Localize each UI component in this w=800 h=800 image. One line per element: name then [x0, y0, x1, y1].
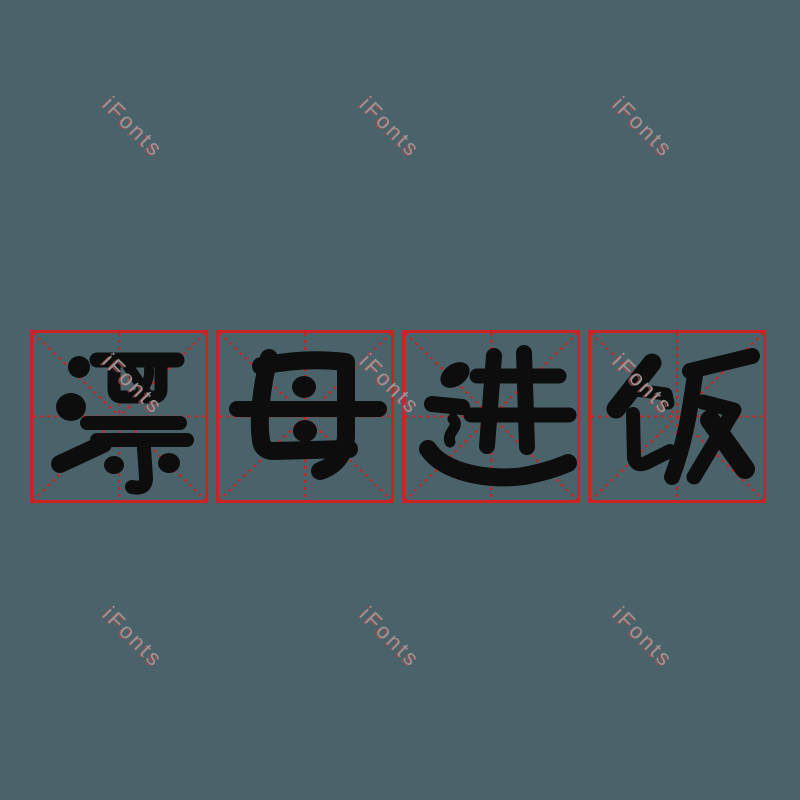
grid-box-3: 进: [402, 330, 580, 503]
watermark-text: iFonts: [608, 93, 677, 162]
watermark-text: iFonts: [98, 603, 167, 672]
font-preview-canvas: 漂 母: [0, 0, 800, 800]
watermark-text: iFonts: [608, 603, 677, 672]
watermark-text: iFonts: [355, 603, 424, 672]
character-glyph-fan: [588, 330, 766, 503]
grid-box-4: 饭: [588, 330, 766, 503]
practice-grid-row: 漂 母: [30, 330, 766, 503]
watermark-text: iFonts: [98, 93, 167, 162]
character-glyph-jin: [402, 330, 580, 503]
watermark-text: iFonts: [355, 93, 424, 162]
